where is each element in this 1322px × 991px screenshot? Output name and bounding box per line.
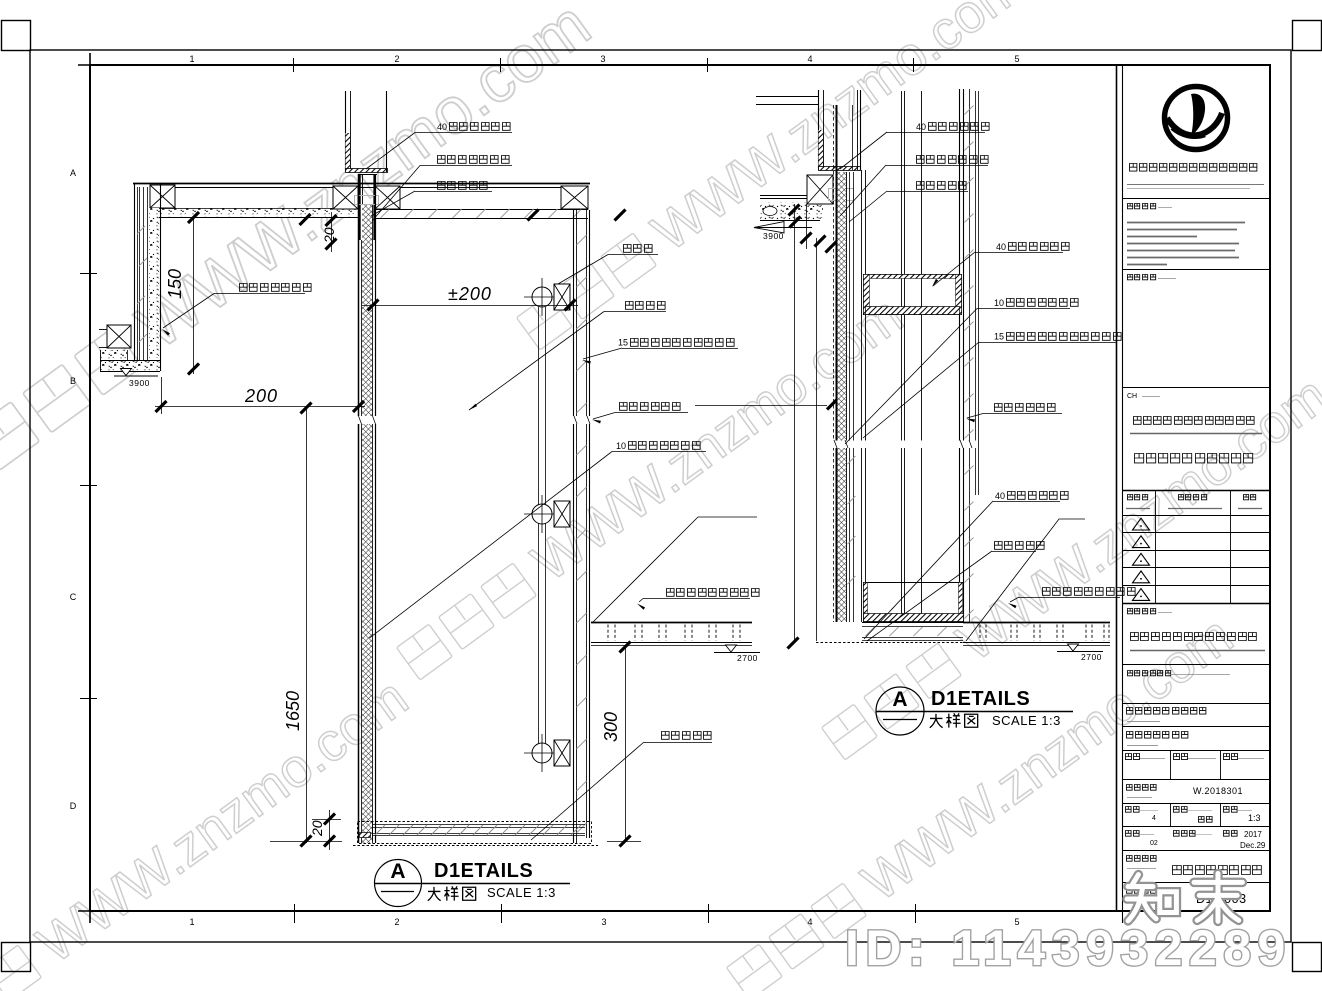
svg-text:1650: 1650 [283,691,303,731]
svg-text:D1ETAILS: D1ETAILS [931,688,1030,710]
svg-text:2700: 2700 [1081,652,1102,662]
svg-text:SCALE 1:3: SCALE 1:3 [487,885,556,900]
svg-text:20: 20 [309,820,325,837]
svg-text:2017: 2017 [1244,830,1262,839]
svg-text:3900: 3900 [129,378,150,388]
svg-text:40: 40 [996,242,1006,252]
svg-text:±200: ±200 [448,284,492,304]
svg-text:1: 1 [189,917,194,927]
svg-text:300: 300 [601,712,621,742]
svg-text:1: 1 [189,54,194,64]
svg-text:02: 02 [1150,840,1158,847]
svg-text:10: 10 [994,298,1004,308]
svg-text:2: 2 [394,917,399,927]
svg-text:40: 40 [995,491,1005,501]
svg-text:15: 15 [618,338,628,348]
svg-text:3: 3 [600,54,605,64]
svg-text:40: 40 [916,122,926,132]
svg-text:D: D [70,801,77,811]
svg-text:2: 2 [394,54,399,64]
svg-text:D1ETAILS: D1ETAILS [434,860,533,882]
svg-text:200: 200 [244,386,278,406]
svg-text:1:3: 1:3 [1248,813,1261,823]
svg-text:3: 3 [601,917,606,927]
svg-text:A: A [70,168,76,178]
svg-text:Dec.29: Dec.29 [1240,841,1266,850]
svg-text:CH: CH [1127,393,1137,400]
svg-text:SCALE 1:3: SCALE 1:3 [992,713,1061,728]
svg-text:B: B [70,376,76,386]
svg-text:5: 5 [1014,54,1019,64]
svg-text:W.2018301: W.2018301 [1193,786,1243,796]
svg-text:2700: 2700 [737,653,758,663]
svg-text:15: 15 [994,332,1004,342]
svg-text:4: 4 [1152,815,1156,822]
svg-text:A: A [390,860,405,883]
svg-text:4: 4 [807,917,812,927]
svg-text:A: A [892,688,907,711]
svg-text:C: C [70,592,77,602]
svg-text:150: 150 [165,269,185,299]
svg-text:10: 10 [616,441,626,451]
svg-text:20: 20 [321,227,337,244]
svg-text:4: 4 [807,54,812,64]
svg-text:ID: 1143932289: ID: 1143932289 [845,920,1292,976]
svg-text:40: 40 [437,122,447,132]
svg-text:3900: 3900 [763,231,784,241]
